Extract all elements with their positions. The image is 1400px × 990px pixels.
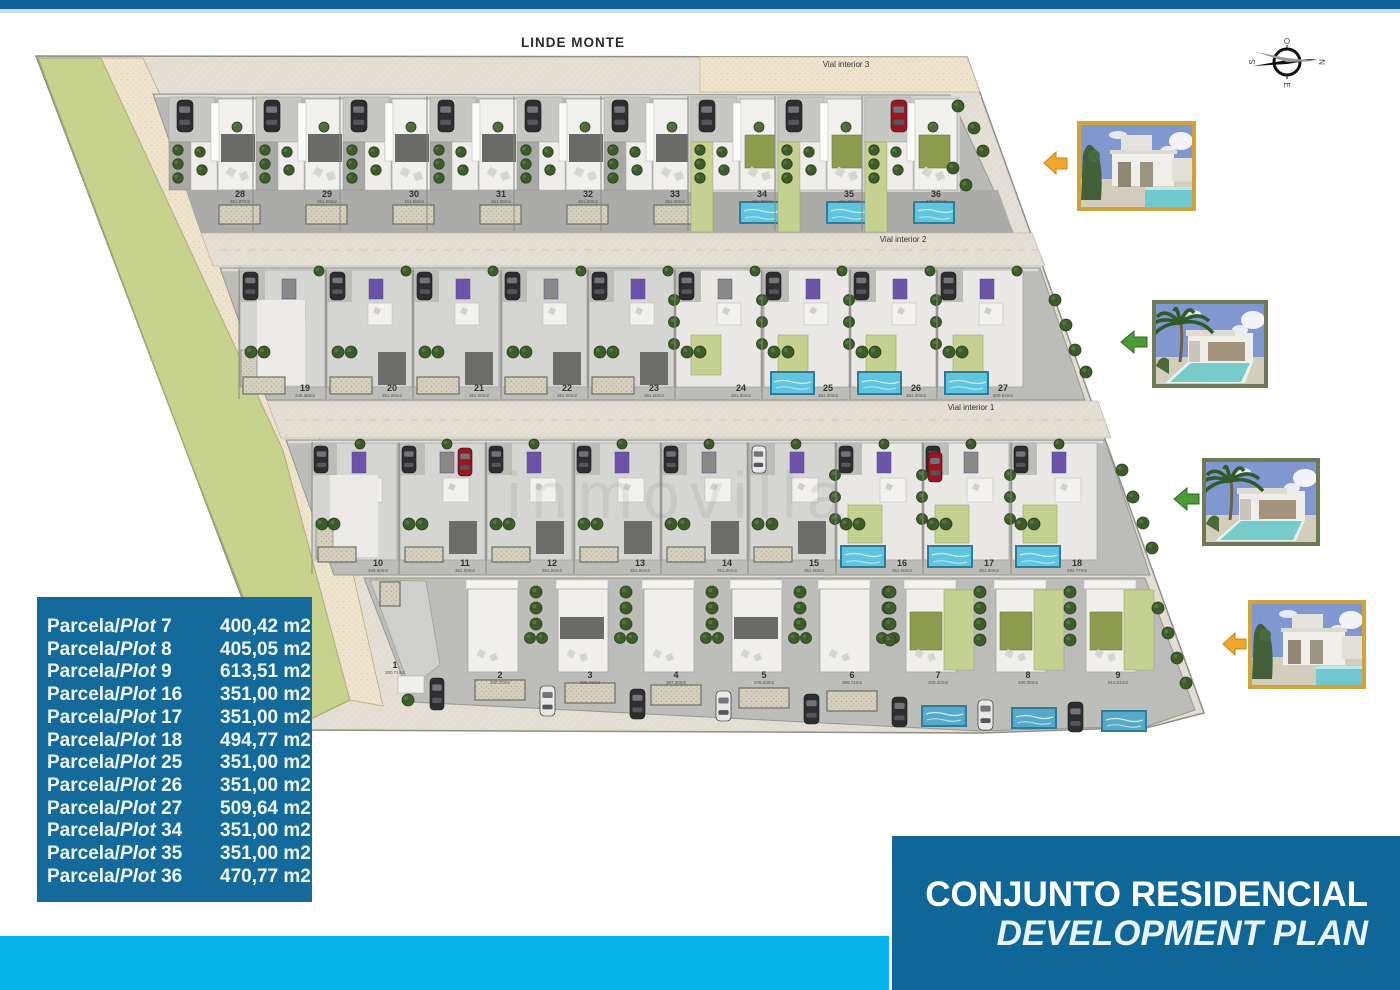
svg-text:1: 1: [392, 660, 397, 670]
svg-text:351,00 m2: 351,00 m2: [220, 684, 311, 705]
svg-text:367.20m2: 367.20m2: [666, 680, 687, 685]
svg-text:Parcela/Plot 35: Parcela/Plot 35: [47, 843, 183, 864]
svg-text:345.38m2: 345.38m2: [295, 393, 316, 398]
svg-text:Parcela/Plot 36: Parcela/Plot 36: [47, 866, 182, 887]
svg-text:351,00 m2: 351,00 m2: [220, 820, 311, 841]
svg-text:351.00m2: 351.00m2: [717, 568, 738, 573]
svg-text:Parcela/Plot 17: Parcela/Plot 17: [47, 707, 182, 728]
svg-text:405.05m2: 405.05m2: [1018, 680, 1039, 685]
svg-text:3: 3: [587, 670, 592, 680]
svg-text:349.60m2: 349.60m2: [368, 568, 389, 573]
svg-text:19: 19: [300, 383, 310, 393]
svg-text:34: 34: [757, 189, 767, 199]
svg-text:Parcela/Plot 9: Parcela/Plot 9: [47, 661, 172, 682]
svg-text:28: 28: [235, 189, 245, 199]
svg-text:351.00m2: 351.00m2: [542, 568, 563, 573]
svg-text:O: O: [1284, 37, 1290, 46]
svg-text:200.71m2: 200.71m2: [385, 670, 406, 675]
svg-text:351.00m2: 351.00m2: [317, 199, 338, 204]
svg-text:16: 16: [897, 558, 907, 568]
svg-text:Vial interior 3: Vial interior 3: [823, 60, 870, 69]
svg-text:351.00m2: 351.00m2: [818, 393, 839, 398]
svg-text:N: N: [1317, 59, 1326, 65]
svg-text:CONJUNTO RESIDENCIAL: CONJUNTO RESIDENCIAL: [925, 875, 1368, 914]
svg-text:613.51m2: 613.51m2: [1108, 680, 1129, 685]
svg-text:E: E: [1282, 82, 1291, 87]
svg-text:LINDE MONTE: LINDE MONTE: [521, 35, 625, 50]
svg-text:35: 35: [844, 189, 854, 199]
svg-text:21: 21: [474, 383, 484, 393]
svg-text:351.00m2: 351.00m2: [455, 568, 476, 573]
svg-text:14: 14: [722, 558, 732, 568]
svg-text:Parcela/Plot 8: Parcela/Plot 8: [47, 639, 172, 660]
svg-text:30: 30: [409, 189, 419, 199]
svg-text:7: 7: [935, 670, 940, 680]
svg-text:351.00m2: 351.00m2: [382, 393, 403, 398]
svg-text:351.00m2: 351.00m2: [644, 393, 665, 398]
svg-text:369.71m2: 369.71m2: [842, 680, 863, 685]
svg-text:9: 9: [1115, 670, 1120, 680]
svg-text:351.00m2: 351.00m2: [979, 568, 1000, 573]
svg-text:351.97m2: 351.97m2: [230, 199, 251, 204]
svg-text:6: 6: [849, 670, 854, 680]
svg-text:8: 8: [1025, 670, 1030, 680]
svg-text:13: 13: [635, 558, 645, 568]
svg-text:351.00m2: 351.00m2: [404, 199, 425, 204]
svg-text:351,00 m2: 351,00 m2: [220, 775, 311, 796]
svg-text:31: 31: [496, 189, 506, 199]
svg-text:351.00m2: 351.00m2: [469, 393, 490, 398]
svg-text:351.00m2: 351.00m2: [839, 199, 860, 204]
svg-text:29: 29: [322, 189, 332, 199]
svg-text:11: 11: [460, 558, 470, 568]
svg-text:10: 10: [373, 558, 383, 568]
svg-text:24: 24: [736, 383, 746, 393]
svg-text:Vial interior 2: Vial interior 2: [880, 235, 927, 244]
svg-text:26: 26: [911, 383, 921, 393]
svg-text:12: 12: [547, 558, 557, 568]
svg-text:25: 25: [823, 383, 833, 393]
svg-text:33: 33: [670, 189, 680, 199]
svg-text:200.20m2: 200.20m2: [490, 680, 511, 685]
svg-text:351,00 m2: 351,00 m2: [220, 752, 311, 773]
svg-text:509.64m2: 509.64m2: [993, 393, 1014, 398]
svg-text:351.00m2: 351.00m2: [804, 568, 825, 573]
svg-text:351,00 m2: 351,00 m2: [220, 707, 311, 728]
svg-text:494,77 m2: 494,77 m2: [220, 730, 311, 751]
svg-text:36: 36: [931, 189, 941, 199]
svg-text:351.00m2: 351.00m2: [892, 568, 913, 573]
svg-text:351.00m2: 351.00m2: [491, 199, 512, 204]
svg-text:494.77m2: 494.77m2: [1067, 568, 1088, 573]
svg-text:351.00m2: 351.00m2: [731, 393, 752, 398]
svg-text:4: 4: [673, 670, 678, 680]
svg-text:15: 15: [809, 558, 819, 568]
svg-text:Parcela/Plot 7: Parcela/Plot 7: [47, 616, 172, 637]
svg-text:18: 18: [1072, 558, 1082, 568]
svg-text:351.00m2: 351.00m2: [665, 199, 686, 204]
svg-text:22: 22: [562, 383, 572, 393]
svg-text:5: 5: [761, 670, 766, 680]
svg-text:351.00m2: 351.00m2: [906, 393, 927, 398]
svg-text:378.63m2: 378.63m2: [754, 680, 775, 685]
svg-text:613,51 m2: 613,51 m2: [220, 661, 311, 682]
svg-text:Parcela/Plot 25: Parcela/Plot 25: [47, 752, 183, 773]
svg-text:Parcela/Plot 34: Parcela/Plot 34: [47, 820, 183, 841]
svg-text:400.42m2: 400.42m2: [928, 680, 949, 685]
svg-text:Parcela/Plot 27: Parcela/Plot 27: [47, 798, 182, 819]
svg-text:2: 2: [497, 670, 502, 680]
svg-text:Parcela/Plot 26: Parcela/Plot 26: [47, 775, 182, 796]
svg-text:Parcela/Plot 18: Parcela/Plot 18: [47, 730, 182, 751]
svg-text:DEVELOPMENT PLAN: DEVELOPMENT PLAN: [997, 914, 1369, 953]
svg-text:405,05 m2: 405,05 m2: [220, 639, 311, 660]
svg-text:351,00 m2: 351,00 m2: [220, 843, 311, 864]
svg-text:351.00m2: 351.00m2: [630, 568, 651, 573]
svg-text:S: S: [1248, 59, 1257, 64]
svg-text:20: 20: [387, 383, 397, 393]
svg-text:400,42 m2: 400,42 m2: [220, 616, 311, 637]
svg-text:17: 17: [984, 558, 994, 568]
svg-text:351.00m2: 351.00m2: [578, 199, 599, 204]
svg-text:Vial interior 1: Vial interior 1: [948, 403, 995, 412]
svg-text:32: 32: [583, 189, 593, 199]
svg-text:351.00m2: 351.00m2: [557, 393, 578, 398]
svg-text:351.00m2: 351.00m2: [752, 199, 773, 204]
svg-text:inmovilla: inmovilla: [507, 458, 854, 532]
svg-text:470.77m2: 470.77m2: [926, 199, 947, 204]
svg-text:470,77 m2: 470,77 m2: [220, 866, 311, 887]
svg-text:206.46m2: 206.46m2: [580, 680, 601, 685]
svg-text:27: 27: [998, 383, 1008, 393]
svg-text:509,64 m2: 509,64 m2: [220, 798, 311, 819]
svg-text:Parcela/Plot 16: Parcela/Plot 16: [47, 684, 182, 705]
svg-text:23: 23: [649, 383, 659, 393]
